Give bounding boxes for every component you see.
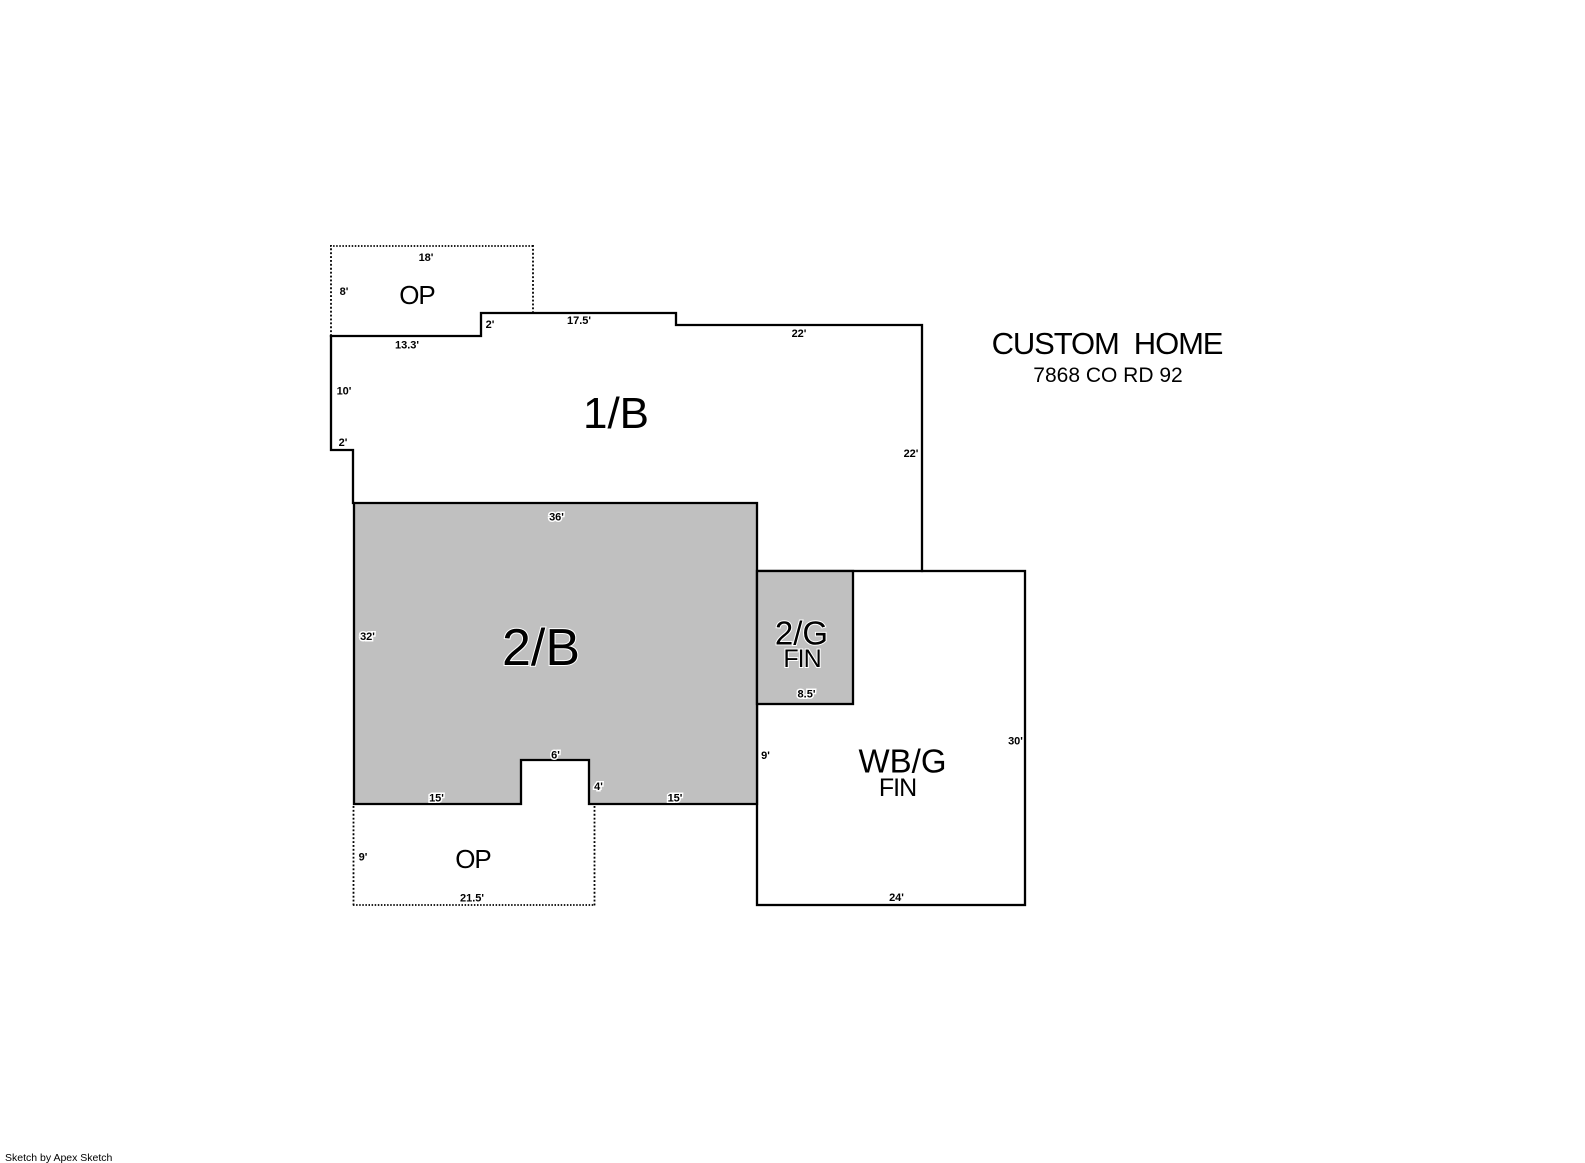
svg-text:15': 15' <box>668 793 683 805</box>
svg-text:18': 18' <box>419 252 434 264</box>
svg-text:22': 22' <box>792 328 807 340</box>
svg-text:8': 8' <box>340 286 349 298</box>
svg-text:22': 22' <box>904 448 919 460</box>
svg-text:32': 32' <box>360 631 375 643</box>
svg-text:17.5': 17.5' <box>567 315 591 327</box>
svg-text:OP: OP <box>455 844 491 874</box>
svg-text:8.5': 8.5' <box>798 689 816 701</box>
svg-text:2': 2' <box>486 319 495 331</box>
svg-text:15': 15' <box>429 793 444 805</box>
svg-text:10': 10' <box>337 386 352 398</box>
svg-text:1/B: 1/B <box>583 389 649 438</box>
svg-text:7868 CO RD 92: 7868 CO RD 92 <box>1033 364 1182 387</box>
svg-text:Sketch by Apex Sketch: Sketch by Apex Sketch <box>5 1152 113 1163</box>
svg-text:2/B: 2/B <box>502 619 580 677</box>
svg-text:9': 9' <box>761 750 770 762</box>
svg-text:FIN: FIN <box>783 645 820 673</box>
svg-text:FIN: FIN <box>879 774 916 802</box>
svg-text:OP: OP <box>399 280 435 310</box>
svg-text:30': 30' <box>1008 736 1023 748</box>
svg-text:21.5': 21.5' <box>460 893 484 905</box>
svg-text:9': 9' <box>359 852 368 864</box>
svg-text:6': 6' <box>551 750 560 762</box>
svg-text:2': 2' <box>339 437 348 449</box>
svg-text:36': 36' <box>549 512 564 524</box>
svg-text:13.3': 13.3' <box>395 340 419 352</box>
svg-text:4': 4' <box>594 781 603 793</box>
svg-text:CUSTOM HOME: CUSTOM HOME <box>992 326 1223 361</box>
svg-text:24': 24' <box>889 892 904 904</box>
